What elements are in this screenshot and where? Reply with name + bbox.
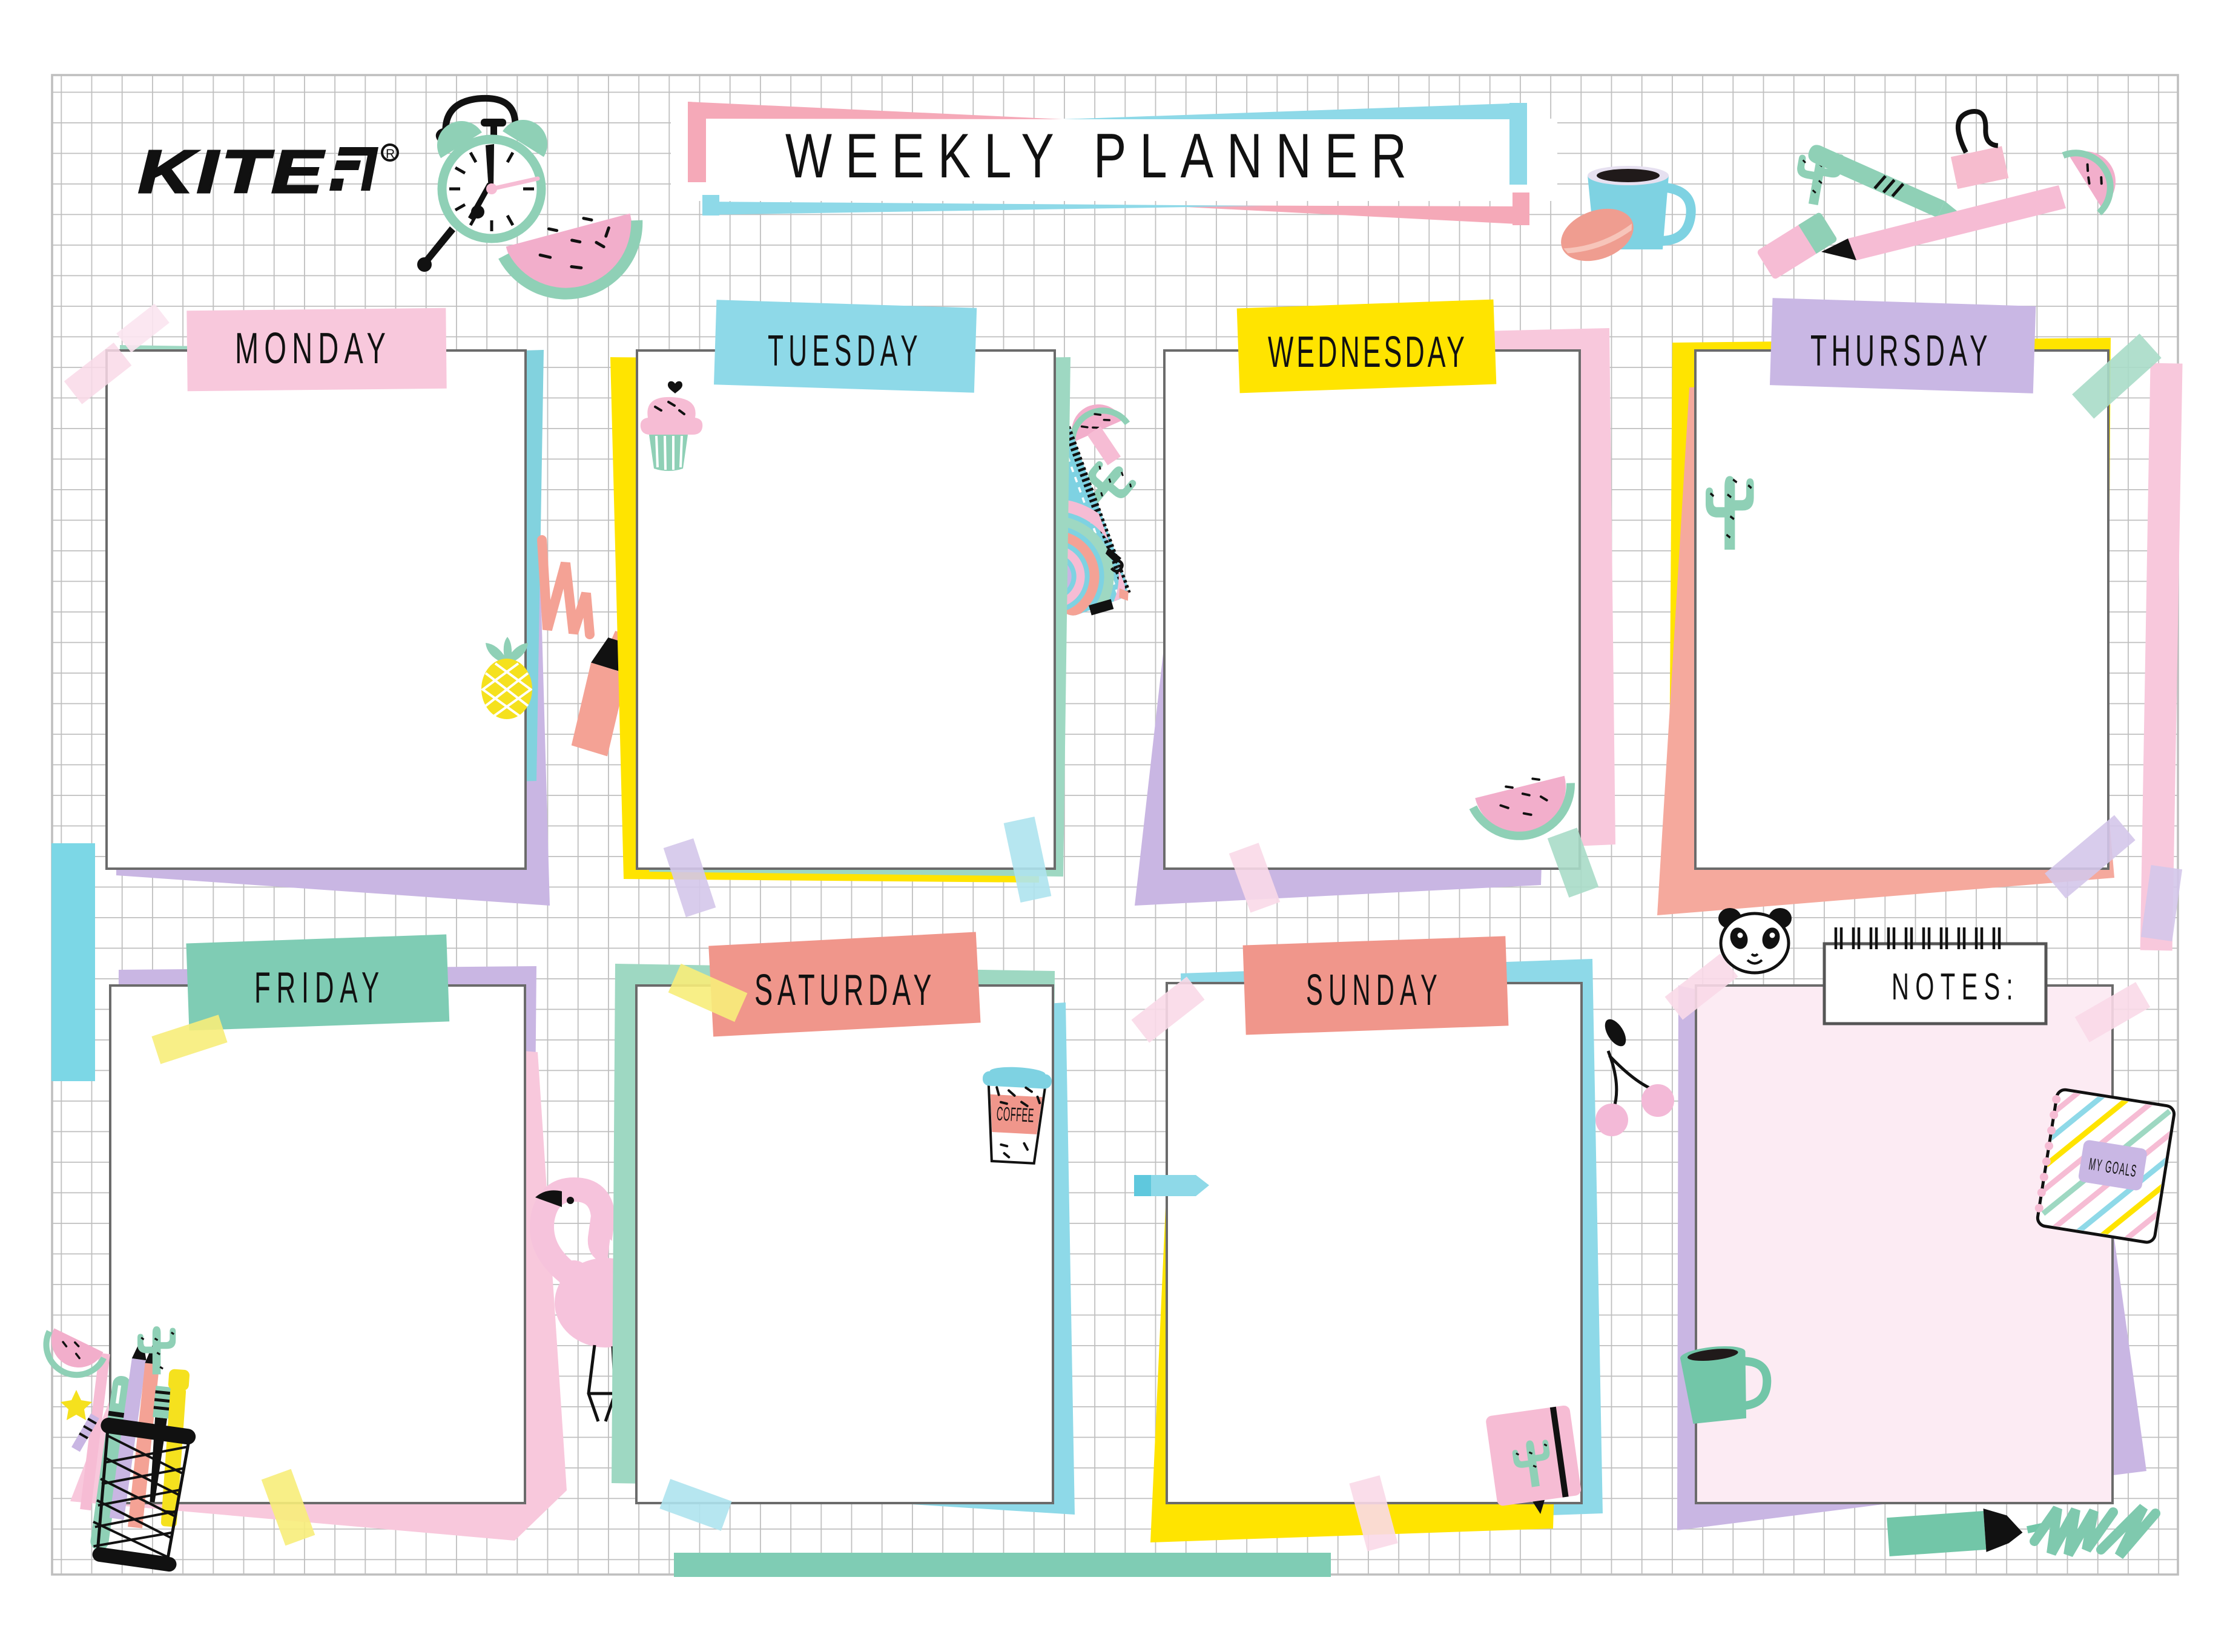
svg-text:TUESDAY: TUESDAY: [768, 327, 923, 375]
svg-text:WEEKLY PLANNER: WEEKLY PLANNER: [785, 121, 1420, 191]
svg-text:SUNDAY: SUNDAY: [1306, 966, 1443, 1015]
svg-text:THURSDAY: THURSDAY: [1810, 327, 1992, 375]
svg-text:SATURDAY: SATURDAY: [754, 966, 936, 1015]
svg-text:MONDAY: MONDAY: [235, 324, 391, 373]
svg-text:KITE: KITE: [138, 138, 326, 206]
svg-text:FRIDAY: FRIDAY: [254, 964, 385, 1012]
svg-text:NOTES:: NOTES:: [1892, 966, 2019, 1008]
svg-text:R: R: [386, 147, 395, 161]
svg-text:COFFEE: COFFEE: [996, 1102, 1035, 1126]
svg-text:WEDNESDAY: WEDNESDAY: [1268, 328, 1468, 377]
